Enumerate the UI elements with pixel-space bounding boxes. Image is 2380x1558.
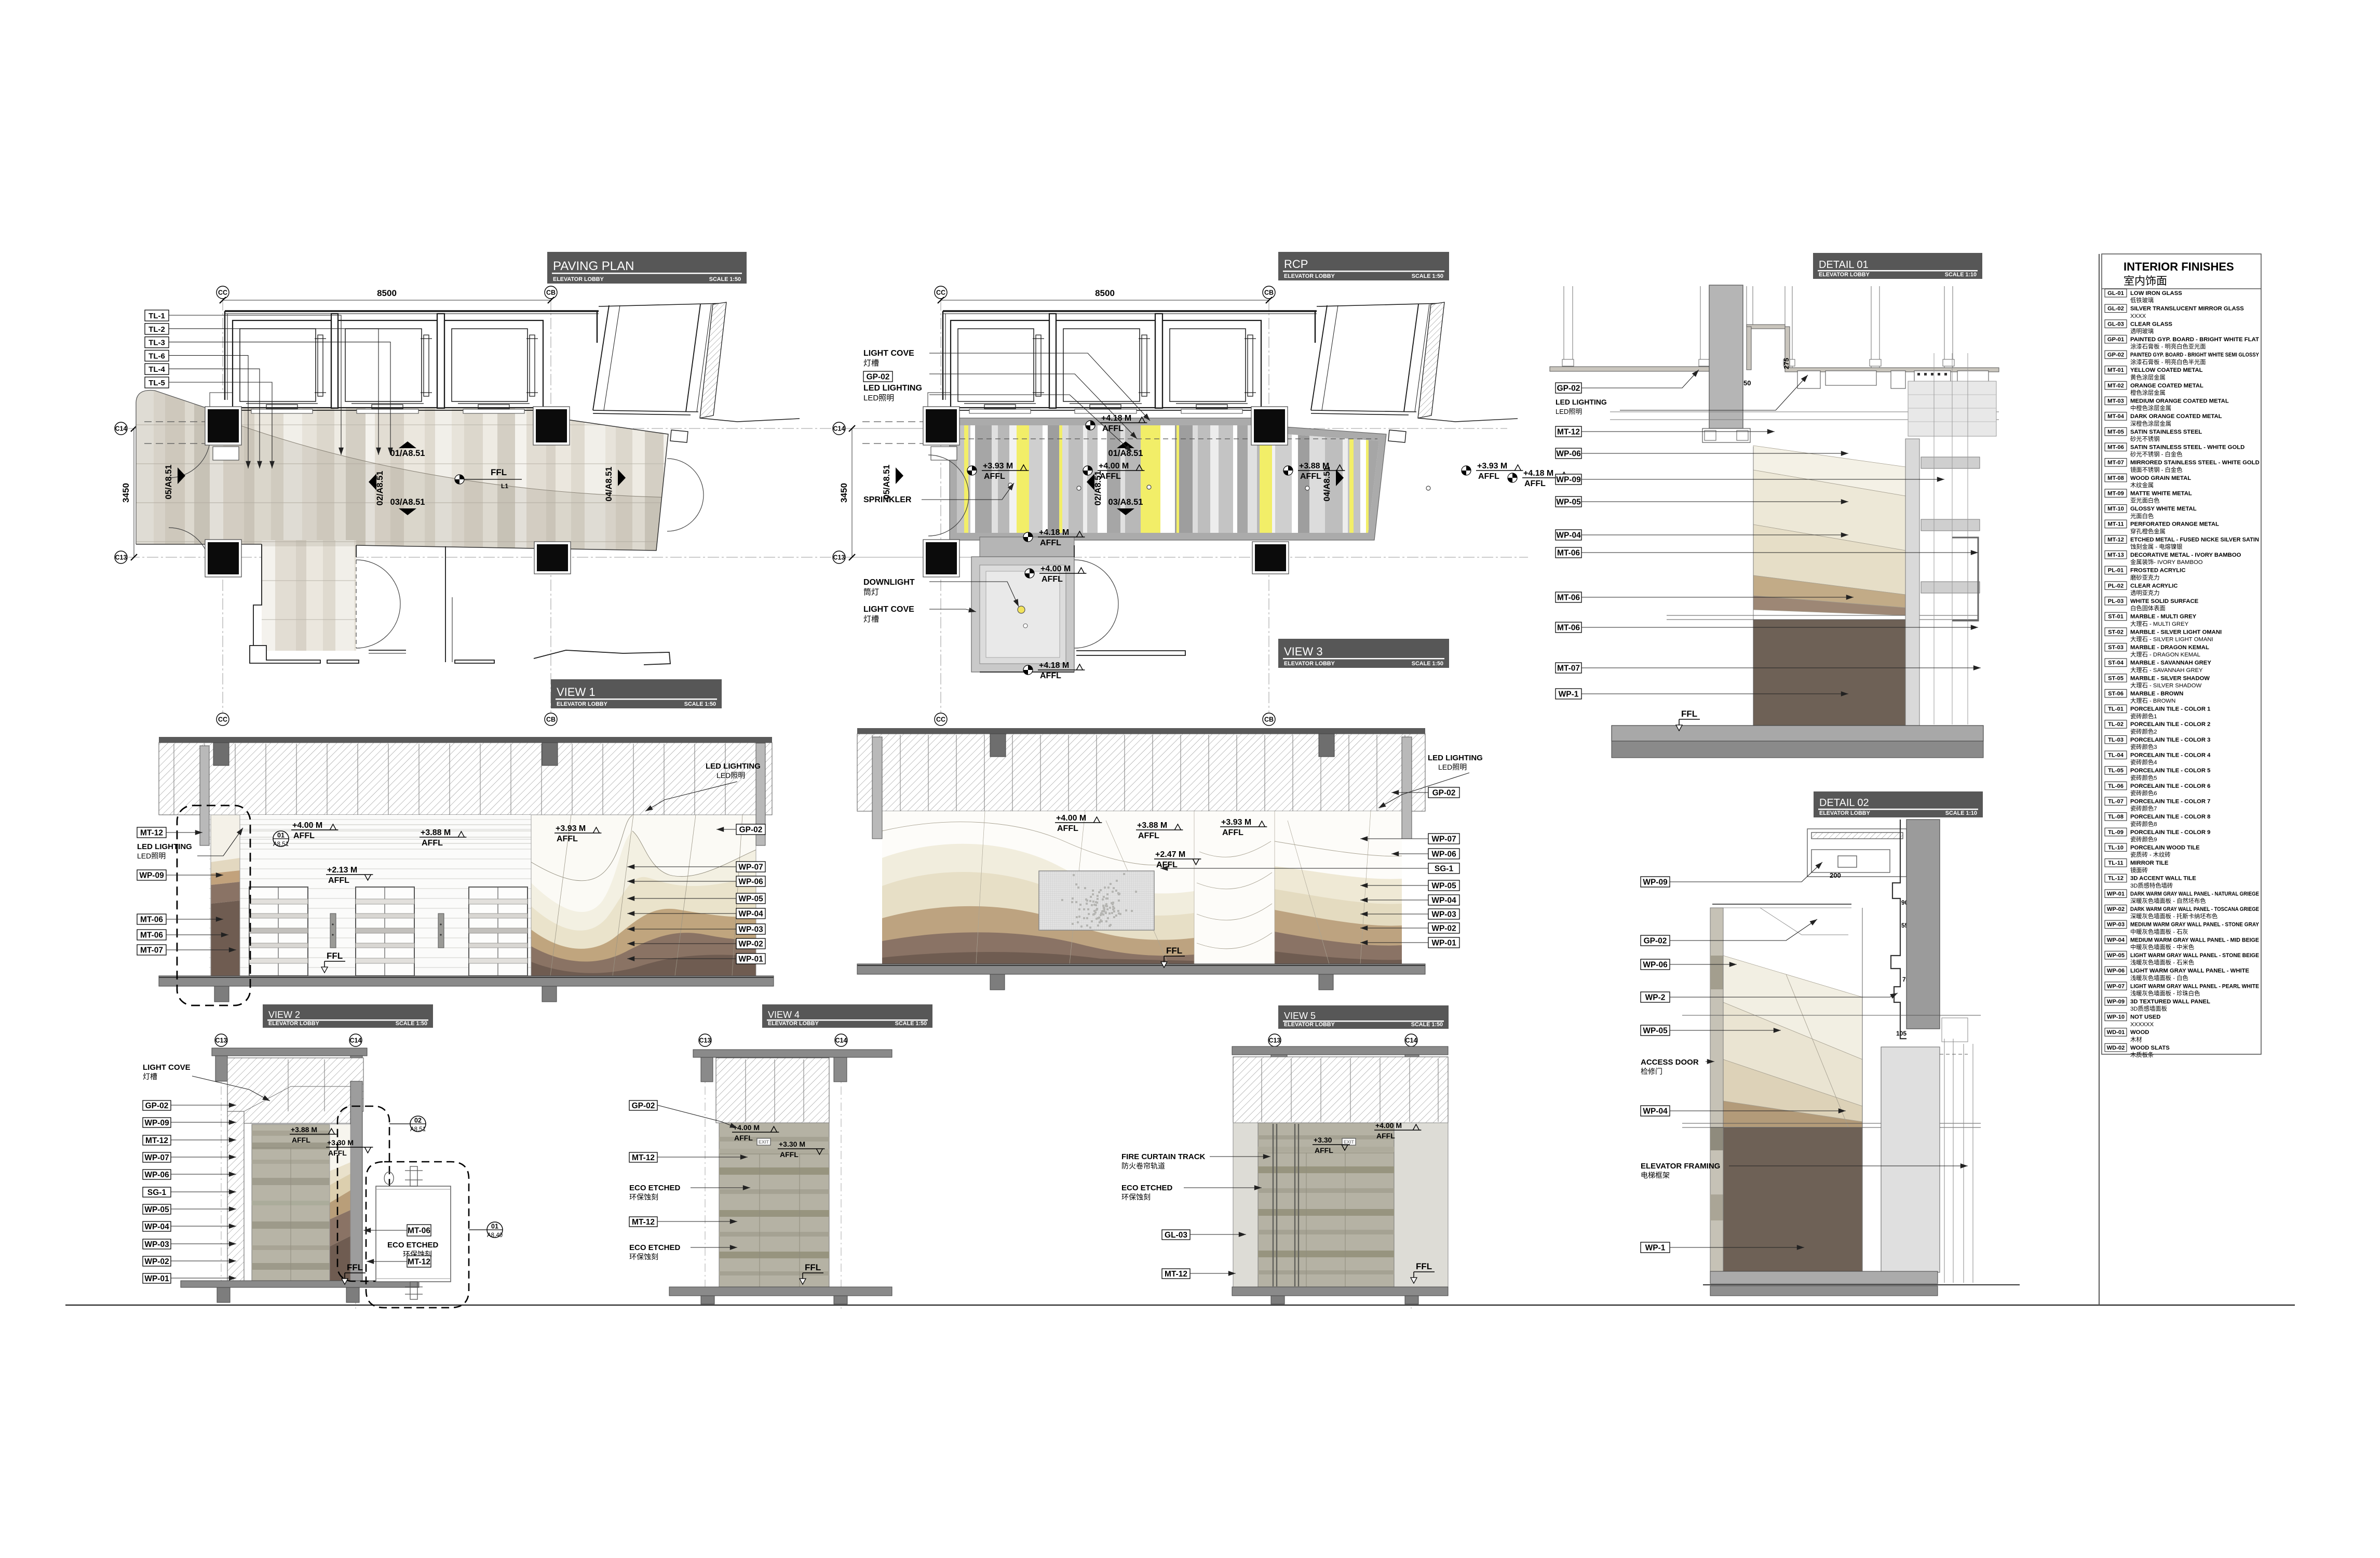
svg-text:LIGHT COVE: LIGHT COVE [863,349,914,358]
svg-text:TL-02: TL-02 [2108,721,2124,728]
svg-text:MT-08: MT-08 [2107,475,2124,481]
svg-text:C14: C14 [835,1037,847,1044]
svg-text:FIRE CURTAIN TRACK: FIRE CURTAIN TRACK [1121,1152,1206,1161]
svg-text:GLOSSY WHITE METAL: GLOSSY WHITE METAL [2130,506,2197,512]
svg-text:MT-12: MT-12 [1557,428,1580,437]
svg-text:MT-12: MT-12 [408,1258,430,1267]
svg-text:ECO ETCHED: ECO ETCHED [629,1243,681,1252]
svg-text:MT-06: MT-06 [1557,594,1580,602]
svg-text:WP-10: WP-10 [2107,1014,2125,1020]
svg-text:05/A8.51: 05/A8.51 [882,465,891,500]
svg-text:筒灯: 筒灯 [863,588,879,597]
svg-text:SATIN STAINLESS STEEL: SATIN STAINLESS STEEL [2130,429,2202,435]
svg-text:橙色涂层金属: 橙色涂层金属 [2130,389,2166,396]
svg-text:LED照明: LED照明 [137,852,166,860]
svg-text:LED照明: LED照明 [716,771,745,780]
svg-text:50: 50 [1743,379,1751,387]
svg-text:TL-11: TL-11 [2108,860,2123,866]
svg-text:LED LIGHTING: LED LIGHTING [1428,754,1483,762]
svg-text:WP-03: WP-03 [738,925,763,934]
svg-text:MT-05: MT-05 [2107,429,2124,435]
svg-text:WP-06: WP-06 [144,1171,169,1179]
svg-text:+3.93 M: +3.93 M [1221,818,1251,827]
svg-text:中橙色涂层金属: 中橙色涂层金属 [2130,405,2171,412]
svg-text:亚光面白色: 亚光面白色 [2130,497,2160,504]
svg-text:MIRRORED STAINLESS STEEL - WHI: MIRRORED STAINLESS STEEL - WHITE GOLD [2130,460,2260,466]
svg-text:MT-13: MT-13 [2107,552,2124,558]
svg-text:木材: 木材 [2130,1036,2142,1043]
svg-text:WP-05: WP-05 [1431,882,1456,891]
svg-text:+3.88 M: +3.88 M [421,828,451,837]
svg-text:瓷砖颜色8: 瓷砖颜色8 [2130,820,2157,827]
svg-text:PORCELAIN WOOD TILE: PORCELAIN WOOD TILE [2130,844,2200,851]
svg-text:DETAIL 01: DETAIL 01 [1819,259,1869,271]
svg-text:SCALE 1:50: SCALE 1:50 [684,701,716,707]
svg-text:LED照明: LED照明 [1438,763,1467,771]
svg-text:WP-04: WP-04 [1556,531,1581,540]
svg-text:FFL: FFL [347,1262,363,1272]
svg-text:大理石 - DRAGON KEMAL: 大理石 - DRAGON KEMAL [2130,651,2200,658]
svg-text:WP-01: WP-01 [144,1274,169,1283]
svg-text:瓷砖颜色4: 瓷砖颜色4 [2130,759,2157,766]
svg-text:环保蚀刻: 环保蚀刻 [1121,1193,1151,1201]
svg-text:TL-06: TL-06 [2108,783,2124,789]
svg-text:MT-09: MT-09 [2107,490,2124,496]
svg-text:275: 275 [1782,358,1790,369]
svg-text:WP-07: WP-07 [738,863,763,872]
svg-text:MT-12: MT-12 [1165,1270,1187,1279]
svg-text:LED LIGHTING: LED LIGHTING [863,384,922,393]
svg-text:8500: 8500 [377,288,397,298]
svg-text:3D质感特色墙砖: 3D质感特色墙砖 [2130,882,2173,889]
svg-text:WP-06: WP-06 [1556,450,1581,459]
svg-text:SG-1: SG-1 [147,1188,167,1197]
svg-text:WP-06: WP-06 [1431,850,1456,859]
svg-text:瓷砖颜色2: 瓷砖颜色2 [2130,728,2157,735]
svg-text:TL-3: TL-3 [148,339,165,347]
svg-text:瓷砖颜色5: 瓷砖颜色5 [2130,774,2157,781]
svg-text:TL-12: TL-12 [2108,876,2124,882]
svg-text:MT-12: MT-12 [145,1136,168,1145]
svg-text:SCALE 1:10: SCALE 1:10 [1945,272,1977,278]
svg-text:AFFL: AFFL [292,1136,310,1144]
svg-text:C14: C14 [115,425,127,433]
svg-text:SCALE 1:50: SCALE 1:50 [1411,1022,1443,1028]
svg-text:PERFORATED ORANGE METAL: PERFORATED ORANGE METAL [2130,521,2219,528]
svg-text:A8.51: A8.51 [273,841,289,848]
svg-text:AFFL: AFFL [780,1150,799,1159]
svg-text:GL-03: GL-03 [2107,321,2124,327]
svg-text:MT-03: MT-03 [2107,398,2124,405]
svg-text:MT-07: MT-07 [2107,460,2124,466]
svg-text:XXXXXX: XXXXXX [2130,1022,2154,1028]
svg-text:ELEVATOR LOBBY: ELEVATOR LOBBY [268,1020,320,1027]
svg-text:MARBLE - BROWN: MARBLE - BROWN [2130,691,2183,697]
svg-text:AFFL: AFFL [1376,1132,1395,1140]
svg-text:+4.00 M: +4.00 M [1056,814,1086,823]
svg-text:AFFL: AFFL [1300,472,1321,481]
svg-text:白色固体表面: 白色固体表面 [2130,605,2166,612]
svg-text:LED照明: LED照明 [1556,408,1582,415]
svg-text:GP-02: GP-02 [739,826,763,835]
svg-text:C13: C13 [115,554,127,561]
svg-text:+3.30 M: +3.30 M [779,1140,805,1148]
svg-text:VIEW 4: VIEW 4 [768,1010,800,1020]
svg-text:WP-06: WP-06 [738,878,763,887]
svg-text:WP-07: WP-07 [2107,983,2125,989]
svg-text:AFFL: AFFL [1102,424,1124,433]
svg-text:WD-02: WD-02 [2107,1045,2125,1051]
svg-text:DARK WARM GRAY WALL PANEL - NA: DARK WARM GRAY WALL PANEL - NATURAL GRIE… [2130,891,2259,897]
svg-text:+4.18 M: +4.18 M [1039,528,1069,537]
svg-text:EXIT: EXIT [759,1139,769,1145]
svg-text:TL-1: TL-1 [148,312,165,320]
svg-text:FFL: FFL [805,1262,821,1272]
svg-text:浅暖灰色墙面板 - 石米色: 浅暖灰色墙面板 - 石米色 [2130,959,2194,966]
svg-text:WP-06: WP-06 [2107,968,2125,974]
svg-text:SATIN STAINLESS STEEL - WHITE: SATIN STAINLESS STEEL - WHITE GOLD [2130,445,2244,451]
svg-text:02/A8.51: 02/A8.51 [1093,471,1103,506]
svg-text:WOOD GRAIN METAL: WOOD GRAIN METAL [2130,475,2191,481]
svg-text:ST-03: ST-03 [2108,644,2124,651]
svg-text:02: 02 [414,1117,422,1124]
svg-text:WP-05: WP-05 [1643,1027,1668,1036]
svg-text:AFFL: AFFL [1057,824,1078,833]
svg-text:3450: 3450 [121,483,131,503]
svg-text:AFFL: AFFL [1042,575,1063,584]
svg-text:木纹金属: 木纹金属 [2130,481,2154,489]
svg-text:01/A8.51: 01/A8.51 [390,449,425,458]
svg-text:ST-06: ST-06 [2108,691,2124,697]
svg-text:+4.18 M: +4.18 M [1523,469,1553,478]
svg-text:ST-01: ST-01 [2108,614,2124,620]
svg-text:PORCELAIN TILE - COLOR 9: PORCELAIN TILE - COLOR 9 [2130,829,2210,836]
svg-text:AFFL: AFFL [984,472,1005,481]
svg-text:MARBLE - SAVANNAH GREY: MARBLE - SAVANNAH GREY [2130,660,2211,666]
svg-text:WP-03: WP-03 [2107,922,2125,928]
svg-text:TL-04: TL-04 [2108,753,2124,759]
svg-text:AFFL: AFFL [293,831,315,840]
svg-text:WP-05: WP-05 [2107,952,2125,959]
svg-text:镜面不锈钢 - 白金色: 镜面不锈钢 - 白金色 [2130,466,2182,473]
svg-text:C14: C14 [833,425,845,433]
svg-text:PORCELAIN TILE - COLOR 8: PORCELAIN TILE - COLOR 8 [2130,814,2210,820]
svg-text:ST-04: ST-04 [2108,660,2124,666]
svg-text:WP-05: WP-05 [738,895,763,904]
svg-text:PORCELAIN TILE - COLOR 3: PORCELAIN TILE - COLOR 3 [2130,737,2210,743]
svg-text:WP-07: WP-07 [144,1153,169,1162]
svg-text:ELEVATOR LOBBY: ELEVATOR LOBBY [1819,810,1871,816]
svg-text:WHITE SOLID SURFACE: WHITE SOLID SURFACE [2130,598,2199,605]
svg-text:透明玻璃: 透明玻璃 [2130,328,2154,335]
svg-text:AFFL: AFFL [1040,671,1061,680]
svg-text:PAVING PLAN: PAVING PLAN [553,259,634,273]
svg-text:PORCELAIN TILE - COLOR 6: PORCELAIN TILE - COLOR 6 [2130,783,2210,789]
svg-text:C14: C14 [1405,1037,1417,1044]
svg-text:+4.00 M: +4.00 M [1375,1121,1402,1130]
svg-text:WP-09: WP-09 [1556,476,1581,485]
svg-text:WP-1: WP-1 [1559,690,1579,699]
svg-text:MT-07: MT-07 [140,946,163,955]
svg-text:ST-05: ST-05 [2108,675,2124,681]
svg-text:WOOD: WOOD [2130,1029,2149,1036]
svg-text:MT-04: MT-04 [2107,413,2124,420]
svg-text:涂漆石膏板 - 明亮白色半光面: 涂漆石膏板 - 明亮白色半光面 [2130,358,2206,366]
svg-text:INTERIOR FINISHES: INTERIOR FINISHES [2124,260,2234,273]
svg-text:瓷砖颜色1: 瓷砖颜色1 [2130,713,2157,720]
svg-text:MT-10: MT-10 [2107,506,2124,512]
svg-text:CB: CB [1264,289,1274,297]
svg-text:AFFL: AFFL [422,839,443,848]
svg-text:PORCELAIN TILE - COLOR 7: PORCELAIN TILE - COLOR 7 [2130,799,2210,805]
svg-text:+4.00 M: +4.00 M [292,821,322,830]
svg-text:中暖灰色墙面板 - 石灰: 中暖灰色墙面板 - 石灰 [2130,928,2188,935]
svg-text:AFFL: AFFL [1100,472,1121,481]
svg-text:SCALE 1:50: SCALE 1:50 [709,276,741,283]
svg-text:瓷砖颜色3: 瓷砖颜色3 [2130,743,2157,750]
svg-text:MT-02: MT-02 [2107,383,2124,389]
svg-text:ELEVATOR FRAMING: ELEVATOR FRAMING [1641,1162,1720,1171]
svg-text:NOT USED: NOT USED [2130,1014,2160,1020]
svg-text:FROSTED ACRYLIC: FROSTED ACRYLIC [2130,568,2185,574]
svg-text:+2.47 M: +2.47 M [1155,850,1185,859]
svg-text:GP-02: GP-02 [1644,937,1667,946]
svg-text:MARBLE - SILVER LIGHT OMANI: MARBLE - SILVER LIGHT OMANI [2130,629,2222,635]
svg-text:C13: C13 [833,554,845,561]
svg-text:PAINTED GYP. BOARD - BRIGHT WH: PAINTED GYP. BOARD - BRIGHT WHITE SEMI G… [2130,352,2259,358]
svg-text:TL-05: TL-05 [2108,768,2124,774]
svg-text:WP-09: WP-09 [144,1119,169,1127]
svg-text:ST-02: ST-02 [2108,629,2124,635]
svg-text:WP-02: WP-02 [738,940,763,949]
svg-text:+2.13 M: +2.13 M [327,866,357,875]
svg-text:GP-02: GP-02 [145,1102,169,1110]
svg-text:LIGHT WARM GRAY WALL PANEL - S: LIGHT WARM GRAY WALL PANEL - STONE BEIGE [2130,952,2259,959]
svg-text:CB: CB [1264,716,1274,723]
svg-text:MT-12: MT-12 [632,1218,655,1227]
svg-text:MT-06: MT-06 [140,931,163,940]
svg-text:镜面砖: 镜面砖 [2130,866,2148,874]
svg-text:+3.93 M: +3.93 M [983,462,1013,471]
svg-text:+3.30 M: +3.30 M [327,1138,354,1147]
svg-text:环保蚀刻: 环保蚀刻 [629,1253,658,1261]
svg-text:TL-03: TL-03 [2108,737,2124,743]
svg-text:WP-07: WP-07 [1431,835,1456,844]
svg-text:蚀刻金属 - 电熔镍银: 蚀刻金属 - 电熔镍银 [2130,543,2182,550]
svg-text:04/A8.51: 04/A8.51 [1322,467,1332,502]
svg-text:CB: CB [546,716,556,723]
svg-text:SCALE 1:50: SCALE 1:50 [895,1020,927,1027]
svg-text:MIRROR TILE: MIRROR TILE [2130,860,2169,866]
svg-text:04/A8.51: 04/A8.51 [604,467,614,502]
svg-text:WP-02: WP-02 [144,1257,169,1266]
svg-text:XXXX: XXXX [2130,313,2146,319]
svg-text:GP-02: GP-02 [1432,789,1456,798]
svg-text:环保蚀刻: 环保蚀刻 [629,1193,658,1201]
svg-text:GL-01: GL-01 [2107,290,2124,297]
svg-text:AFFL: AFFL [1315,1146,1333,1154]
svg-text:灯槽: 灯槽 [863,615,879,624]
svg-text:MEDIUM ORANGE COATED METAL: MEDIUM ORANGE COATED METAL [2130,398,2229,405]
svg-text:DARK ORANGE COATED METAL: DARK ORANGE COATED METAL [2130,413,2222,420]
svg-text:TL-09: TL-09 [2108,829,2124,836]
svg-text:8500: 8500 [1095,288,1115,298]
svg-text:+4.00 M: +4.00 M [1099,462,1129,471]
svg-text:C13: C13 [1269,1037,1281,1044]
svg-text:GP-02: GP-02 [867,373,890,382]
svg-text:AFFL: AFFL [1524,479,1546,488]
svg-text:WP-02: WP-02 [2107,906,2125,912]
svg-text:深橙色涂层金属: 深橙色涂层金属 [2130,420,2171,427]
svg-text:深暖灰色墙面板 - 自然坯布色: 深暖灰色墙面板 - 自然坯布色 [2130,897,2206,905]
svg-text:LIGHT COVE: LIGHT COVE [143,1063,191,1072]
svg-text:+3.88 M: +3.88 M [1137,821,1167,830]
svg-text:MT-01: MT-01 [2107,367,2124,373]
svg-text:A8.51: A8.51 [410,1126,426,1133]
svg-text:砂光不锈钢 - 白金色: 砂光不锈钢 - 白金色 [2130,451,2182,458]
svg-text:TL-4: TL-4 [148,365,165,374]
svg-text:WD-01: WD-01 [2107,1029,2125,1036]
svg-text:大理石 - SILVER LIGHT OMANI: 大理石 - SILVER LIGHT OMANI [2130,636,2213,643]
svg-text:LIGHT WARM GRAY WALL PANEL -: LIGHT WARM GRAY WALL PANEL - WHITE [2130,968,2250,974]
svg-text:VIEW 3: VIEW 3 [1284,645,1323,658]
svg-text:01: 01 [491,1223,498,1230]
svg-text:EXIT: EXIT [1344,1139,1355,1145]
svg-text:+3.93 M: +3.93 M [1477,462,1507,471]
svg-text:光面白色: 光面白色 [2130,512,2154,519]
svg-text:室内饰面: 室内饰面 [2124,275,2167,287]
svg-text:穿孔橙色金属: 穿孔橙色金属 [2130,528,2166,535]
svg-text:+4.18 M: +4.18 M [1101,414,1131,423]
svg-text:ACCESS DOOR: ACCESS DOOR [1641,1058,1699,1067]
svg-text:涂漆石膏板 - 明亮白色亚光面: 涂漆石膏板 - 明亮白色亚光面 [2130,343,2206,350]
svg-text:+3.30: +3.30 [1314,1136,1332,1144]
svg-text:TL-2: TL-2 [148,325,165,334]
svg-text:AFFL: AFFL [1040,539,1061,547]
svg-text:ELEVATOR LOBBY: ELEVATOR LOBBY [1819,272,1870,278]
svg-text:AFFL: AFFL [734,1134,753,1142]
svg-text:+4.00 M: +4.00 M [1040,565,1071,573]
svg-text:大理石 - MULTI GREY: 大理石 - MULTI GREY [2130,620,2189,627]
svg-text:ELEVATOR LOBBY: ELEVATOR LOBBY [768,1020,819,1027]
svg-text:ECO ETCHED: ECO ETCHED [387,1241,439,1250]
svg-text:YELLOW COATED METAL: YELLOW COATED METAL [2130,367,2203,373]
svg-text:浅暖灰色墙面板 - 珍珠白色: 浅暖灰色墙面板 - 珍珠白色 [2130,990,2200,997]
svg-text:MATTE WHITE METAL: MATTE WHITE METAL [2130,490,2192,496]
svg-text:SPRINKLER: SPRINKLER [863,495,912,504]
svg-text:+4.18 M: +4.18 M [1039,661,1069,670]
svg-text:WP-04: WP-04 [2107,937,2125,943]
svg-text:LIGHT WARM GRAY WALL PANEL - P: LIGHT WARM GRAY WALL PANEL - PEARL WHITE [2130,983,2259,989]
svg-text:MEDIUM WARM GRAY WALL PANEL -: MEDIUM WARM GRAY WALL PANEL - STONE GRAY [2130,922,2259,928]
svg-text:01: 01 [277,832,285,839]
svg-text:AFFL: AFFL [1138,831,1159,840]
svg-text:瓷砖颜色9: 瓷砖颜色9 [2130,836,2157,843]
svg-text:CC: CC [936,716,945,723]
svg-text:AFFL: AFFL [1478,472,1499,481]
svg-text:C13: C13 [215,1037,227,1044]
svg-text:MARBLE - SILVER SHADOW: MARBLE - SILVER SHADOW [2130,675,2210,681]
svg-text:MT-06: MT-06 [1557,624,1580,633]
svg-text:FFL: FFL [1681,709,1697,719]
svg-text:05/A8.51: 05/A8.51 [164,465,173,500]
svg-text:MT-06: MT-06 [2107,445,2124,451]
svg-text:PORCELAIN TILE - COLOR 1: PORCELAIN TILE - COLOR 1 [2130,706,2210,713]
svg-text:低铁玻璃: 低铁玻璃 [2130,297,2154,304]
svg-text:GP-02: GP-02 [1557,384,1580,393]
svg-text:WP-04: WP-04 [738,910,763,919]
svg-text:WP-09: WP-09 [2107,999,2125,1005]
svg-text:MT-07: MT-07 [1557,664,1580,673]
svg-text:MT-06: MT-06 [408,1227,430,1235]
svg-text:200: 200 [1830,871,1841,879]
svg-text:WP-01: WP-01 [738,955,763,964]
svg-text:检修门: 检修门 [1641,1067,1662,1076]
svg-text:GL-02: GL-02 [2107,306,2124,312]
svg-text:FFL: FFL [1166,946,1182,956]
svg-text:SCALE 1:10: SCALE 1:10 [1945,810,1977,816]
svg-text:FFL: FFL [1416,1261,1432,1271]
svg-text:中暖灰色墙面板 - 中米色: 中暖灰色墙面板 - 中米色 [2130,944,2194,951]
svg-text:MT-12: MT-12 [140,829,163,838]
svg-text:VIEW 1: VIEW 1 [557,686,596,699]
svg-text:SCALE 1:50: SCALE 1:50 [1412,661,1443,667]
svg-text:深暖灰色墙面板 - 托斯卡纳坯布色: 深暖灰色墙面板 - 托斯卡纳坯布色 [2130,912,2217,920]
svg-text:DOWNLIGHT: DOWNLIGHT [863,578,915,587]
svg-text:PORCELAIN TILE - COLOR 5: PORCELAIN TILE - COLOR 5 [2130,768,2210,774]
svg-text:01/A8.51: 01/A8.51 [1108,449,1143,458]
svg-text:GP-01: GP-01 [2107,337,2124,343]
svg-text:ELEVATOR LOBBY: ELEVATOR LOBBY [1284,1022,1335,1028]
svg-text:CLEAR GLASS: CLEAR GLASS [2130,321,2172,327]
svg-text:木质板条: 木质板条 [2130,1051,2154,1058]
svg-text:WP-01: WP-01 [2107,891,2125,897]
svg-text:MT-06: MT-06 [140,916,163,924]
svg-text:03/A8.51: 03/A8.51 [1108,498,1143,507]
svg-text:A8.40: A8.40 [487,1232,503,1239]
svg-text:CLEAR ACRYLIC: CLEAR ACRYLIC [2130,583,2178,589]
svg-text:ELEVATOR LOBBY: ELEVATOR LOBBY [553,276,604,283]
svg-text:WP-05: WP-05 [144,1205,169,1214]
svg-text:PL-03: PL-03 [2108,598,2124,605]
svg-text:105: 105 [1896,1030,1906,1037]
svg-text:SCALE 1:50: SCALE 1:50 [1412,273,1443,279]
svg-text:AFFL: AFFL [557,835,578,843]
svg-text:03/A8.51: 03/A8.51 [390,498,425,507]
svg-text:ELEVATOR LOBBY: ELEVATOR LOBBY [1284,273,1335,279]
svg-text:ELEVATOR LOBBY: ELEVATOR LOBBY [557,701,608,707]
svg-text:灯槽: 灯槽 [143,1072,157,1081]
svg-text:WP-06: WP-06 [1643,961,1668,970]
svg-text:MEDIUM WARM GRAY WALL PANEL -: MEDIUM WARM GRAY WALL PANEL - MID BEIGE [2130,937,2259,943]
svg-text:电梯框架: 电梯框架 [1641,1171,1670,1179]
svg-text:ORANGE COATED METAL: ORANGE COATED METAL [2130,383,2203,389]
svg-text:LED LIGHTING: LED LIGHTING [1556,398,1607,406]
svg-text:大理石 - BROWN: 大理石 - BROWN [2130,697,2175,704]
svg-text:FFL: FFL [491,467,507,477]
svg-text:+3.93 M: +3.93 M [556,824,586,833]
svg-text:ECO ETCHED: ECO ETCHED [1121,1184,1173,1192]
svg-text:ELEVATOR LOBBY: ELEVATOR LOBBY [1284,661,1335,667]
svg-text:WP-03: WP-03 [144,1240,169,1249]
svg-text:大理石 - SAVANNAH GREY: 大理石 - SAVANNAH GREY [2130,666,2203,674]
svg-text:WP-04: WP-04 [144,1223,169,1231]
svg-text:LED照明: LED照明 [863,394,894,402]
svg-text:CC: CC [936,289,945,297]
svg-text:大理石 - SILVER SHADOW: 大理石 - SILVER SHADOW [2130,682,2202,689]
svg-text:WP-04: WP-04 [1431,896,1456,905]
svg-text:ECO ETCHED: ECO ETCHED [629,1184,681,1192]
